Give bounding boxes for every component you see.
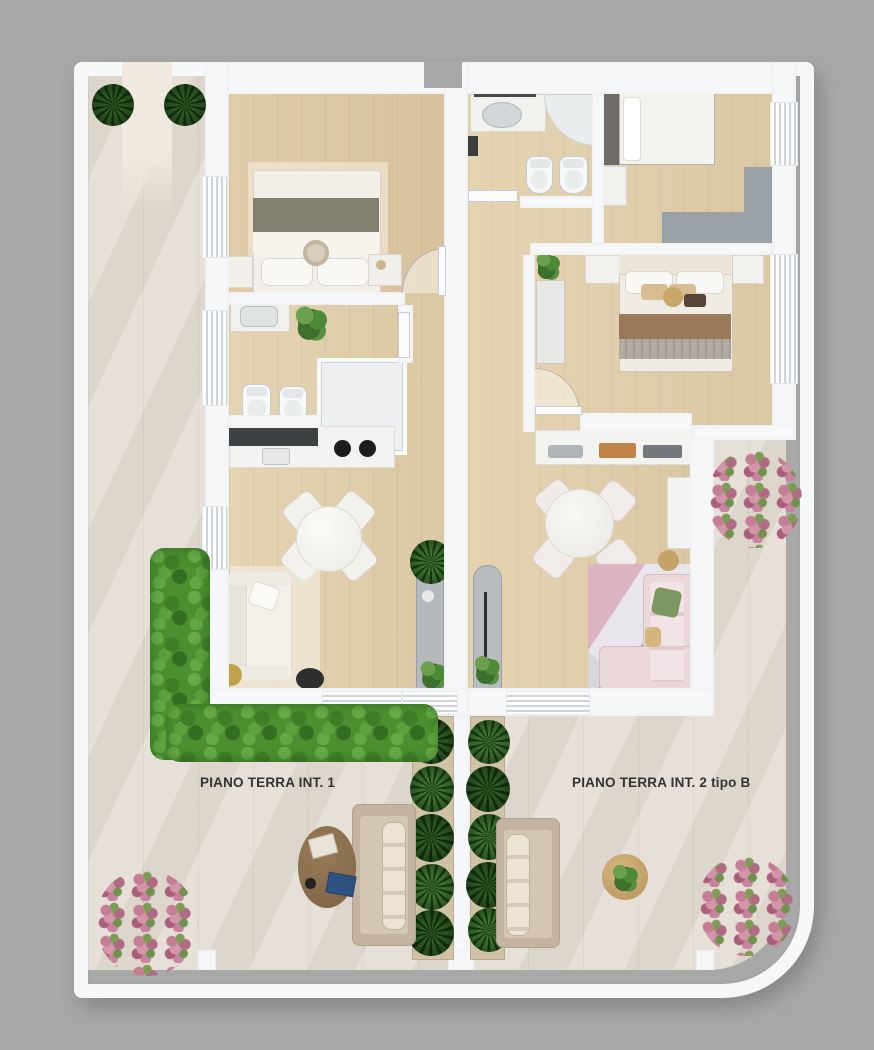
entry-bush-left [92, 84, 134, 126]
apt2-basket [658, 550, 679, 571]
apt1-window-1 [202, 176, 228, 258]
apt2-single-bed-pillow [623, 97, 641, 161]
apt1-bedroom-wall [229, 292, 405, 305]
apt2-bath-sink [482, 102, 522, 128]
apt2-kitchen-board [599, 443, 636, 458]
floor-plan: PIANO TERRA INT. 1 PIANO TERRA INT. 2 ti… [0, 0, 874, 1050]
apt1-bath-wall-bottom [229, 415, 321, 428]
apt1-window-2 [202, 310, 228, 406]
entry-path [122, 62, 172, 212]
apt1-bed-pillow-left [261, 258, 313, 286]
coffee-table-decor-dot [305, 878, 316, 889]
apt2-desk [600, 166, 627, 206]
apt2-master-blanket-knit [619, 339, 731, 359]
apt1-bed-blanket [253, 198, 379, 232]
apt1-kitchen-dark-top [229, 426, 318, 446]
building-wall-right-lower [690, 425, 714, 716]
apt2-window-1 [770, 102, 798, 166]
apt1-kitchen-sink [262, 448, 290, 465]
apt2-wardrobe [536, 280, 565, 364]
apt2-master-round-decor [663, 287, 683, 307]
building-wall-central [444, 62, 468, 716]
planter-left-palm-4 [410, 864, 454, 910]
pink-bush-bottom-left [96, 870, 198, 976]
grass-hedge-horizontal [166, 704, 438, 762]
apt2-master-door-leaf [535, 406, 582, 415]
apt1-console-decor [422, 590, 434, 602]
apt1-bath-sliding-door [398, 312, 410, 358]
apt1-nightstand-vase [376, 260, 386, 270]
facade-notch [424, 62, 462, 88]
apt2-bath-wall-bottom [520, 196, 596, 208]
planter-left-palm-2 [410, 766, 454, 812]
apt2-single-bed-headboard [603, 91, 619, 165]
round-table-plant [608, 860, 642, 894]
apt2-bidet [526, 156, 553, 194]
apt2-master-wall-bottom-b [580, 413, 692, 432]
apt1-bedroom-door-leaf [438, 246, 446, 296]
apt2-nightstand-left [585, 255, 620, 284]
planter-right-palm-1 [468, 720, 510, 764]
apt2-bath-wall-right [592, 94, 604, 245]
building-wall-step [692, 425, 796, 440]
apt2-sofa-tan-pouf [645, 627, 661, 647]
apt2-sofa-green-pillow [650, 586, 682, 618]
apt1-bath-plant [290, 300, 332, 344]
apt2-slider-door [506, 691, 590, 715]
pink-bush-bottom-right [698, 856, 796, 956]
apt2-kitchen-hob [643, 445, 682, 458]
apt2-single-bedroom-wall [530, 243, 772, 255]
pink-bush-right-terrace [708, 450, 802, 548]
terrace-wall-stub-right [696, 950, 714, 970]
apt2-master-wall-bottom-a [523, 413, 535, 432]
apt2-bath-sliding-door [468, 190, 518, 202]
apt2-kitchen-sink [548, 445, 583, 458]
outdoor-sofa-right-cushions [506, 834, 530, 936]
unit2-label: PIANO TERRA INT. 2 tipo B [572, 775, 751, 790]
apt1-bath-sink [240, 306, 278, 327]
apt2-window-2 [770, 254, 798, 384]
apt1-bed-round-decor [303, 240, 329, 266]
terrace-wall-stub-left [198, 950, 216, 970]
building-wall-top [205, 62, 796, 94]
apt2-gray-unit-horizontal [662, 212, 773, 245]
apt2-master-blanket-brown [619, 314, 731, 339]
apt1-pouf-black [296, 668, 324, 690]
apt2-master-wall-left [523, 255, 535, 415]
apt2-dining-table [545, 489, 614, 558]
apt1-nightstand-left [227, 256, 253, 288]
apt2-toilet [559, 156, 588, 194]
outdoor-sofa-left-cushions [382, 822, 406, 930]
building-wall-bottom-apt2 [468, 688, 714, 716]
apt2-floor-fern [471, 650, 503, 688]
apt1-hob-burner-1 [334, 440, 351, 457]
apt1-hob-burner-2 [359, 440, 376, 457]
apt1-nightstand-right [368, 254, 402, 286]
planter-right-palm-2 [466, 766, 510, 812]
apt2-master-tray [684, 294, 706, 307]
unit1-label: PIANO TERRA INT. 1 [200, 775, 335, 790]
entry-bush-right [164, 84, 206, 126]
apt1-dining-table [296, 506, 362, 572]
